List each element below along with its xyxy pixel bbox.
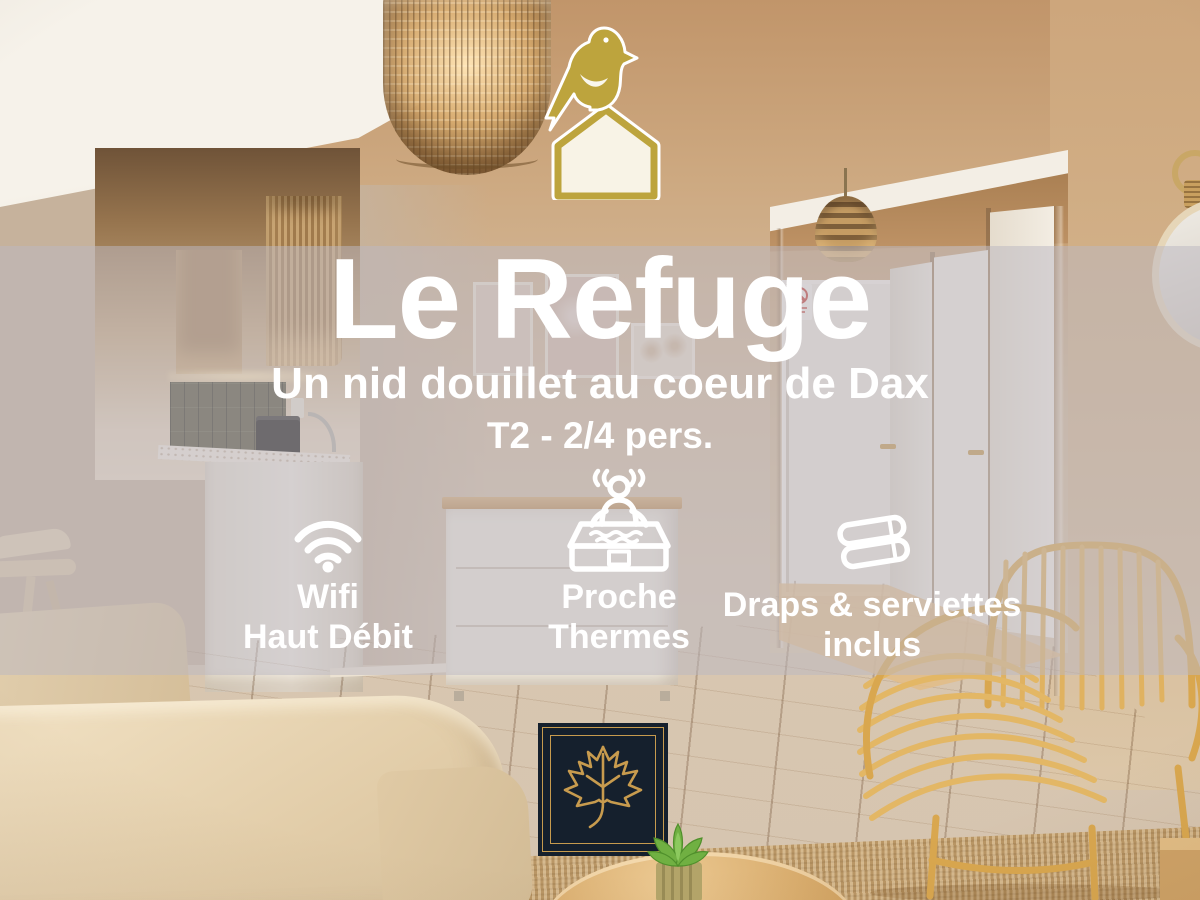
wifi-icon <box>293 512 363 574</box>
feature-wifi-label: Wifi Haut Débit <box>178 577 478 657</box>
towels-icon <box>833 512 915 576</box>
page-subtitle: Un nid douillet au coeur de Dax <box>0 362 1200 406</box>
thermal-bath-icon <box>567 466 671 586</box>
bird-house-logo <box>540 22 672 200</box>
feature-linen-label: Draps & serviettes inclus <box>702 585 1042 665</box>
listing-cover-image: Le Refuge Un nid douillet au coeur de Da… <box>0 0 1200 900</box>
capacity-text: T2 - 2/4 pers. <box>0 417 1200 454</box>
succulent-plant <box>636 808 720 900</box>
house-icon <box>558 110 654 196</box>
page-title: Le Refuge <box>0 243 1200 357</box>
